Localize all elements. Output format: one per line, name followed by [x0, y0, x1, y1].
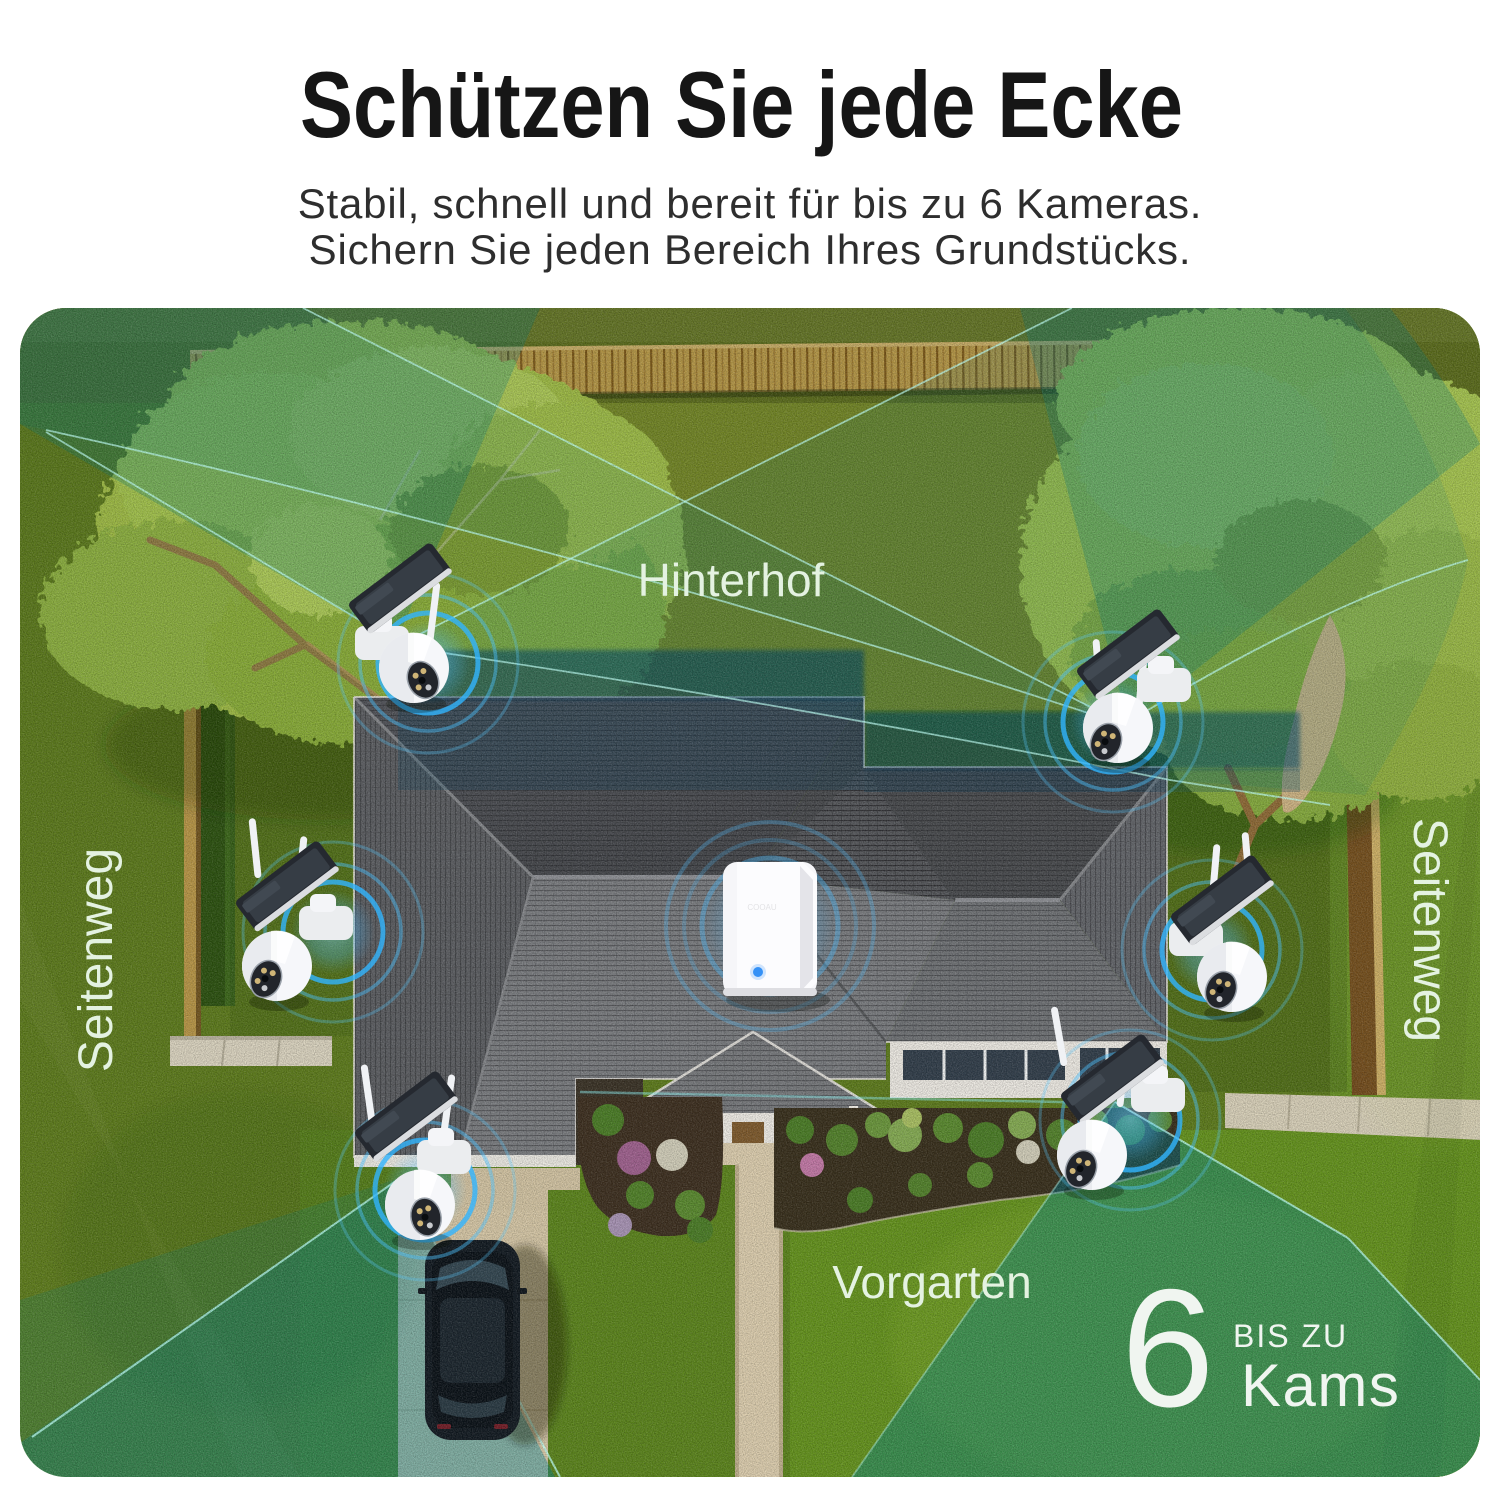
svg-text:Seitenweg: Seitenweg [1403, 818, 1456, 1042]
svg-text:Hinterhof: Hinterhof [638, 554, 825, 606]
svg-text:Vorgarten: Vorgarten [832, 1256, 1031, 1308]
svg-text:COOAU: COOAU [747, 903, 777, 912]
svg-text:6: 6 [1121, 1254, 1214, 1442]
svg-text:Kams: Kams [1241, 1352, 1400, 1419]
svg-text:BIS ZU: BIS ZU [1233, 1318, 1348, 1354]
svg-text:Seitenweg: Seitenweg [70, 848, 123, 1072]
